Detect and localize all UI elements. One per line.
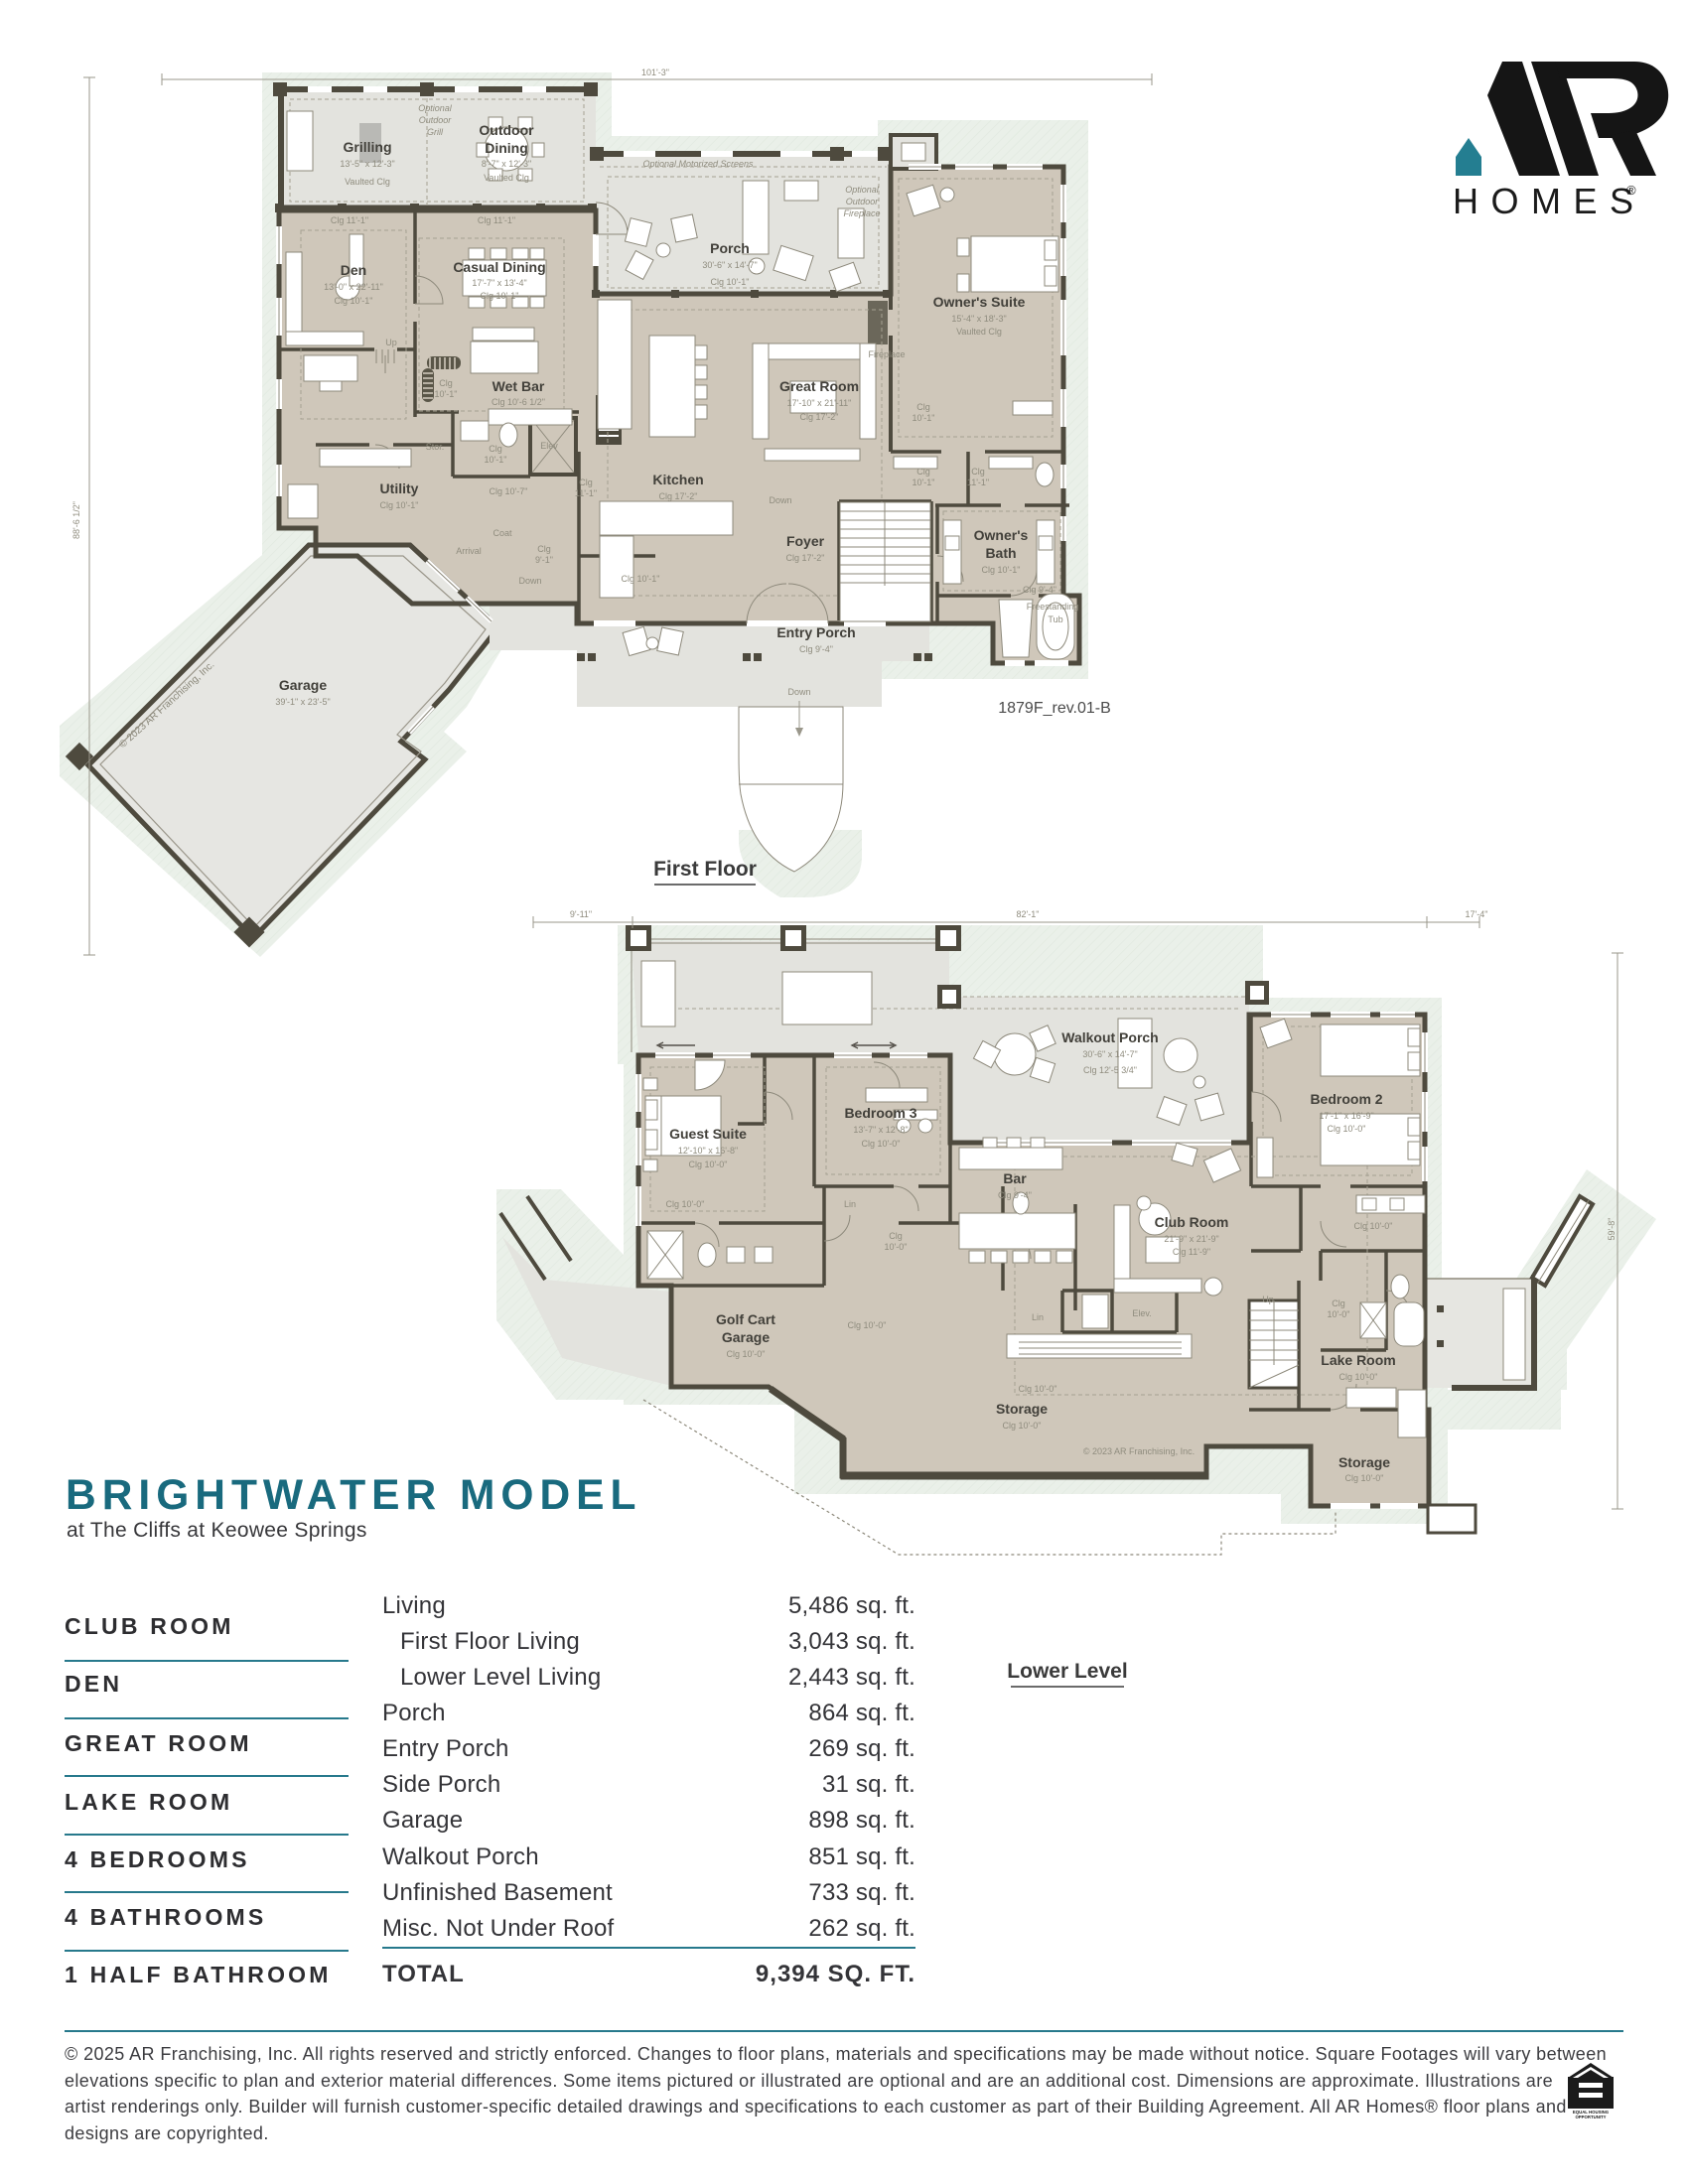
svg-text:Clg: Clg <box>489 444 502 454</box>
svg-text:39'-1" x 23'-5": 39'-1" x 23'-5" <box>275 697 330 707</box>
svg-text:Optional: Optional <box>418 103 453 113</box>
svg-text:Optional Motorized Screens: Optional Motorized Screens <box>642 159 754 169</box>
svg-text:Lin: Lin <box>1032 1312 1044 1322</box>
svg-text:88'-6 1/2": 88'-6 1/2" <box>71 501 81 539</box>
svg-text:30'-6" x 14'-7": 30'-6" x 14'-7" <box>1082 1049 1137 1059</box>
svg-text:Fireplace: Fireplace <box>868 349 905 359</box>
svg-text:Lower Level: Lower Level <box>1007 1660 1127 1683</box>
svg-text:17'-7" x 13'-4": 17'-7" x 13'-4" <box>472 278 526 288</box>
svg-text:Clg 11'-1": Clg 11'-1" <box>331 215 368 225</box>
svg-text:Freestanding: Freestanding <box>1027 602 1079 612</box>
svg-text:Clg 10'-0": Clg 10'-0" <box>862 1139 901 1149</box>
svg-text:Down: Down <box>769 495 791 505</box>
svg-text:Clg 10'-0": Clg 10'-0" <box>1328 1124 1366 1134</box>
svg-text:Clg: Clg <box>889 1231 903 1241</box>
svg-text:Clg: Clg <box>916 402 930 412</box>
svg-text:Clg 10'-6 1/2": Clg 10'-6 1/2" <box>492 397 545 407</box>
svg-text:Optional: Optional <box>845 185 880 195</box>
svg-text:®: ® <box>1626 183 1636 198</box>
svg-text:HOMES: HOMES <box>1453 181 1646 221</box>
svg-text:Bedroom 2: Bedroom 2 <box>1310 1091 1382 1107</box>
svg-text:Casual Dining: Casual Dining <box>453 259 545 275</box>
svg-text:Utility: Utility <box>380 480 419 496</box>
svg-text:Bath: Bath <box>985 545 1016 561</box>
svg-text:Outdoor: Outdoor <box>846 197 880 206</box>
svg-text:9'-11": 9'-11" <box>570 909 592 919</box>
svg-text:Elev.: Elev. <box>1132 1308 1151 1318</box>
svg-text:Clg 10'-1": Clg 10'-1" <box>711 277 750 287</box>
svg-text:Garage: Garage <box>722 1329 770 1345</box>
svg-text:10'-1": 10'-1" <box>485 455 507 465</box>
svg-text:Owner's Suite: Owner's Suite <box>933 294 1026 310</box>
svg-text:Clg 9'-4": Clg 9'-4" <box>998 1190 1032 1200</box>
svg-text:1879F_rev.01-B: 1879F_rev.01-B <box>998 700 1111 717</box>
svg-text:Bedroom 3: Bedroom 3 <box>844 1105 916 1121</box>
svg-text:Vaulted Clg: Vaulted Clg <box>956 327 1002 337</box>
svg-text:12'-10" x 16'-8": 12'-10" x 16'-8" <box>678 1146 738 1156</box>
svg-text:13'-0" x 22'-11": 13'-0" x 22'-11" <box>324 282 383 292</box>
svg-text:Storage: Storage <box>1338 1454 1390 1470</box>
svg-text:Clg 9'-4": Clg 9'-4" <box>1023 585 1056 595</box>
svg-text:Garage: Garage <box>279 677 327 693</box>
svg-text:Down: Down <box>787 687 810 697</box>
svg-text:Clg: Clg <box>439 378 453 388</box>
svg-text:Clg 10'-0": Clg 10'-0" <box>848 1320 887 1330</box>
svg-text:Grilling: Grilling <box>344 139 392 155</box>
svg-text:17'-10" x 21'-11": 17'-10" x 21'-11" <box>787 398 852 408</box>
svg-text:Lin: Lin <box>844 1199 856 1209</box>
svg-text:Clg 10'-1": Clg 10'-1" <box>335 296 373 306</box>
svg-text:Clg 10'-1": Clg 10'-1" <box>622 574 660 584</box>
svg-text:Elev: Elev <box>540 441 558 451</box>
svg-text:Golf Cart: Golf Cart <box>716 1311 775 1327</box>
svg-text:Arrival: Arrival <box>456 546 482 556</box>
svg-text:Coat: Coat <box>492 528 512 538</box>
svg-text:Clg 10'-0": Clg 10'-0" <box>689 1160 728 1169</box>
svg-text:59'-8": 59'-8" <box>1607 1218 1617 1241</box>
svg-text:Clg 10'-0": Clg 10'-0" <box>1339 1372 1378 1382</box>
svg-text:Den: Den <box>341 262 366 278</box>
svg-text:Clg 17'-2": Clg 17'-2" <box>800 412 839 422</box>
svg-text:Stor.: Stor. <box>426 442 445 452</box>
svg-text:82'-1": 82'-1" <box>1017 909 1040 919</box>
svg-text:13'-5" x 12'-3": 13'-5" x 12'-3" <box>340 159 394 169</box>
svg-text:Foyer: Foyer <box>786 533 825 549</box>
svg-text:Clg 10'-1": Clg 10'-1" <box>380 500 419 510</box>
svg-text:Kitchen: Kitchen <box>652 472 703 487</box>
svg-text:Great Room: Great Room <box>779 378 859 394</box>
svg-text:Clg 10'-0": Clg 10'-0" <box>1345 1473 1384 1483</box>
svg-text:Outdoor: Outdoor <box>419 115 453 125</box>
svg-text:Vaulted Clg: Vaulted Clg <box>484 173 529 183</box>
svg-text:10'-0": 10'-0" <box>885 1242 908 1252</box>
svg-text:10'-0": 10'-0" <box>1328 1309 1350 1319</box>
svg-text:Bar: Bar <box>1003 1170 1027 1186</box>
svg-text:Vaulted Clg: Vaulted Clg <box>345 177 390 187</box>
svg-text:First Floor: First Floor <box>653 858 757 881</box>
svg-text:17'-4": 17'-4" <box>1466 909 1488 919</box>
svg-text:11'-1": 11'-1" <box>575 488 597 498</box>
svg-text:Grill: Grill <box>427 127 444 137</box>
svg-text:Dining: Dining <box>485 140 528 156</box>
svg-text:Walkout Porch: Walkout Porch <box>1061 1029 1159 1045</box>
svg-text:Fireplace: Fireplace <box>843 208 880 218</box>
svg-text:Owner's: Owner's <box>974 527 1029 543</box>
svg-text:Clg: Clg <box>1332 1298 1345 1308</box>
svg-text:Wet Bar: Wet Bar <box>492 378 545 394</box>
svg-text:Club Room: Club Room <box>1155 1214 1229 1230</box>
svg-text:30'-6" x 14'-7": 30'-6" x 14'-7" <box>702 260 757 270</box>
svg-text:© 2023 AR Franchising, Inc.: © 2023 AR Franchising, Inc. <box>1083 1446 1195 1456</box>
svg-text:Lake Room: Lake Room <box>1321 1352 1395 1368</box>
svg-text:Down: Down <box>518 576 541 586</box>
svg-text:Clg 12'-5 3/4": Clg 12'-5 3/4" <box>1083 1065 1137 1075</box>
svg-text:11'-1": 11'-1" <box>967 478 989 487</box>
svg-text:9'-1": 9'-1" <box>535 555 553 565</box>
svg-text:10'-1": 10'-1" <box>913 478 935 487</box>
svg-text:Outdoor: Outdoor <box>479 122 534 138</box>
svg-text:Clg 11'-9": Clg 11'-9" <box>1173 1247 1210 1257</box>
svg-text:10'-1": 10'-1" <box>435 389 458 399</box>
svg-text:Porch: Porch <box>710 240 750 256</box>
svg-text:Clg 10'-0": Clg 10'-0" <box>727 1349 766 1359</box>
svg-text:Clg 10'-7": Clg 10'-7" <box>490 486 528 496</box>
svg-text:13'-7" x 12'-8": 13'-7" x 12'-8" <box>853 1125 908 1135</box>
svg-text:Storage: Storage <box>996 1401 1048 1417</box>
svg-text:Clg 10'-1": Clg 10'-1" <box>982 565 1021 575</box>
svg-text:Guest Suite: Guest Suite <box>669 1126 747 1142</box>
svg-text:10'-1": 10'-1" <box>913 413 935 423</box>
svg-text:Clg 10'-0": Clg 10'-0" <box>1019 1384 1057 1394</box>
svg-text:Clg 10'-0": Clg 10'-0" <box>1003 1421 1042 1431</box>
svg-text:101'-3": 101'-3" <box>641 68 669 77</box>
svg-text:Clg 11'-1": Clg 11'-1" <box>478 215 515 225</box>
svg-text:OPPORTUNITY: OPPORTUNITY <box>1575 2115 1606 2119</box>
svg-text:Clg: Clg <box>916 467 930 477</box>
svg-text:Tub: Tub <box>1048 614 1062 624</box>
svg-text:Clg 10'-0": Clg 10'-0" <box>1354 1221 1393 1231</box>
svg-text:17'-1" x 16'-9": 17'-1" x 16'-9" <box>1319 1111 1373 1121</box>
svg-text:8'-7" x 12'-3": 8'-7" x 12'-3" <box>482 159 531 169</box>
svg-text:Clg 10'-0": Clg 10'-0" <box>666 1199 705 1209</box>
svg-text:Up: Up <box>1262 1295 1274 1304</box>
svg-text:Clg: Clg <box>971 467 985 477</box>
svg-text:Entry Porch: Entry Porch <box>776 624 855 640</box>
svg-text:Clg 17'-2": Clg 17'-2" <box>786 553 825 563</box>
svg-text:Clg 9'-4": Clg 9'-4" <box>799 644 833 654</box>
svg-text:Clg 17'-2": Clg 17'-2" <box>659 491 698 501</box>
svg-text:Clg: Clg <box>537 544 551 554</box>
svg-text:15'-4" x 18'-3": 15'-4" x 18'-3" <box>951 314 1006 324</box>
svg-text:21'-9" x 21'-9": 21'-9" x 21'-9" <box>1164 1234 1218 1244</box>
svg-text:Up: Up <box>385 338 397 347</box>
svg-text:Clg 10'-1": Clg 10'-1" <box>481 291 519 301</box>
svg-text:Clg: Clg <box>579 478 593 487</box>
